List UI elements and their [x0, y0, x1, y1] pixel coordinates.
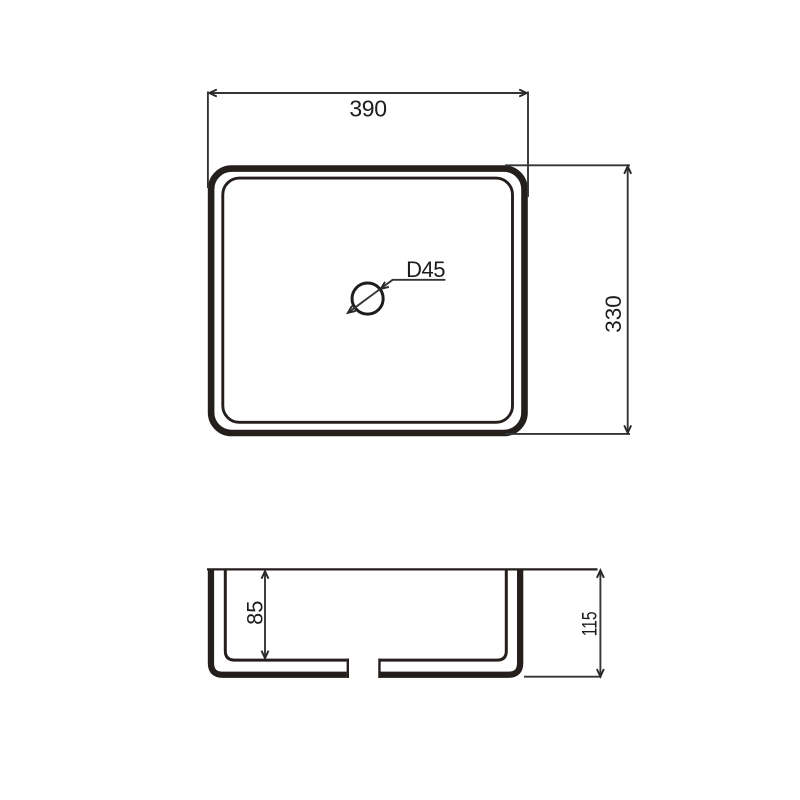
svg-text:330: 330: [601, 295, 626, 333]
svg-text:390: 390: [349, 96, 386, 122]
svg-text:115: 115: [577, 612, 601, 637]
svg-text:85: 85: [243, 601, 268, 625]
svg-text:D45: D45: [406, 257, 445, 282]
